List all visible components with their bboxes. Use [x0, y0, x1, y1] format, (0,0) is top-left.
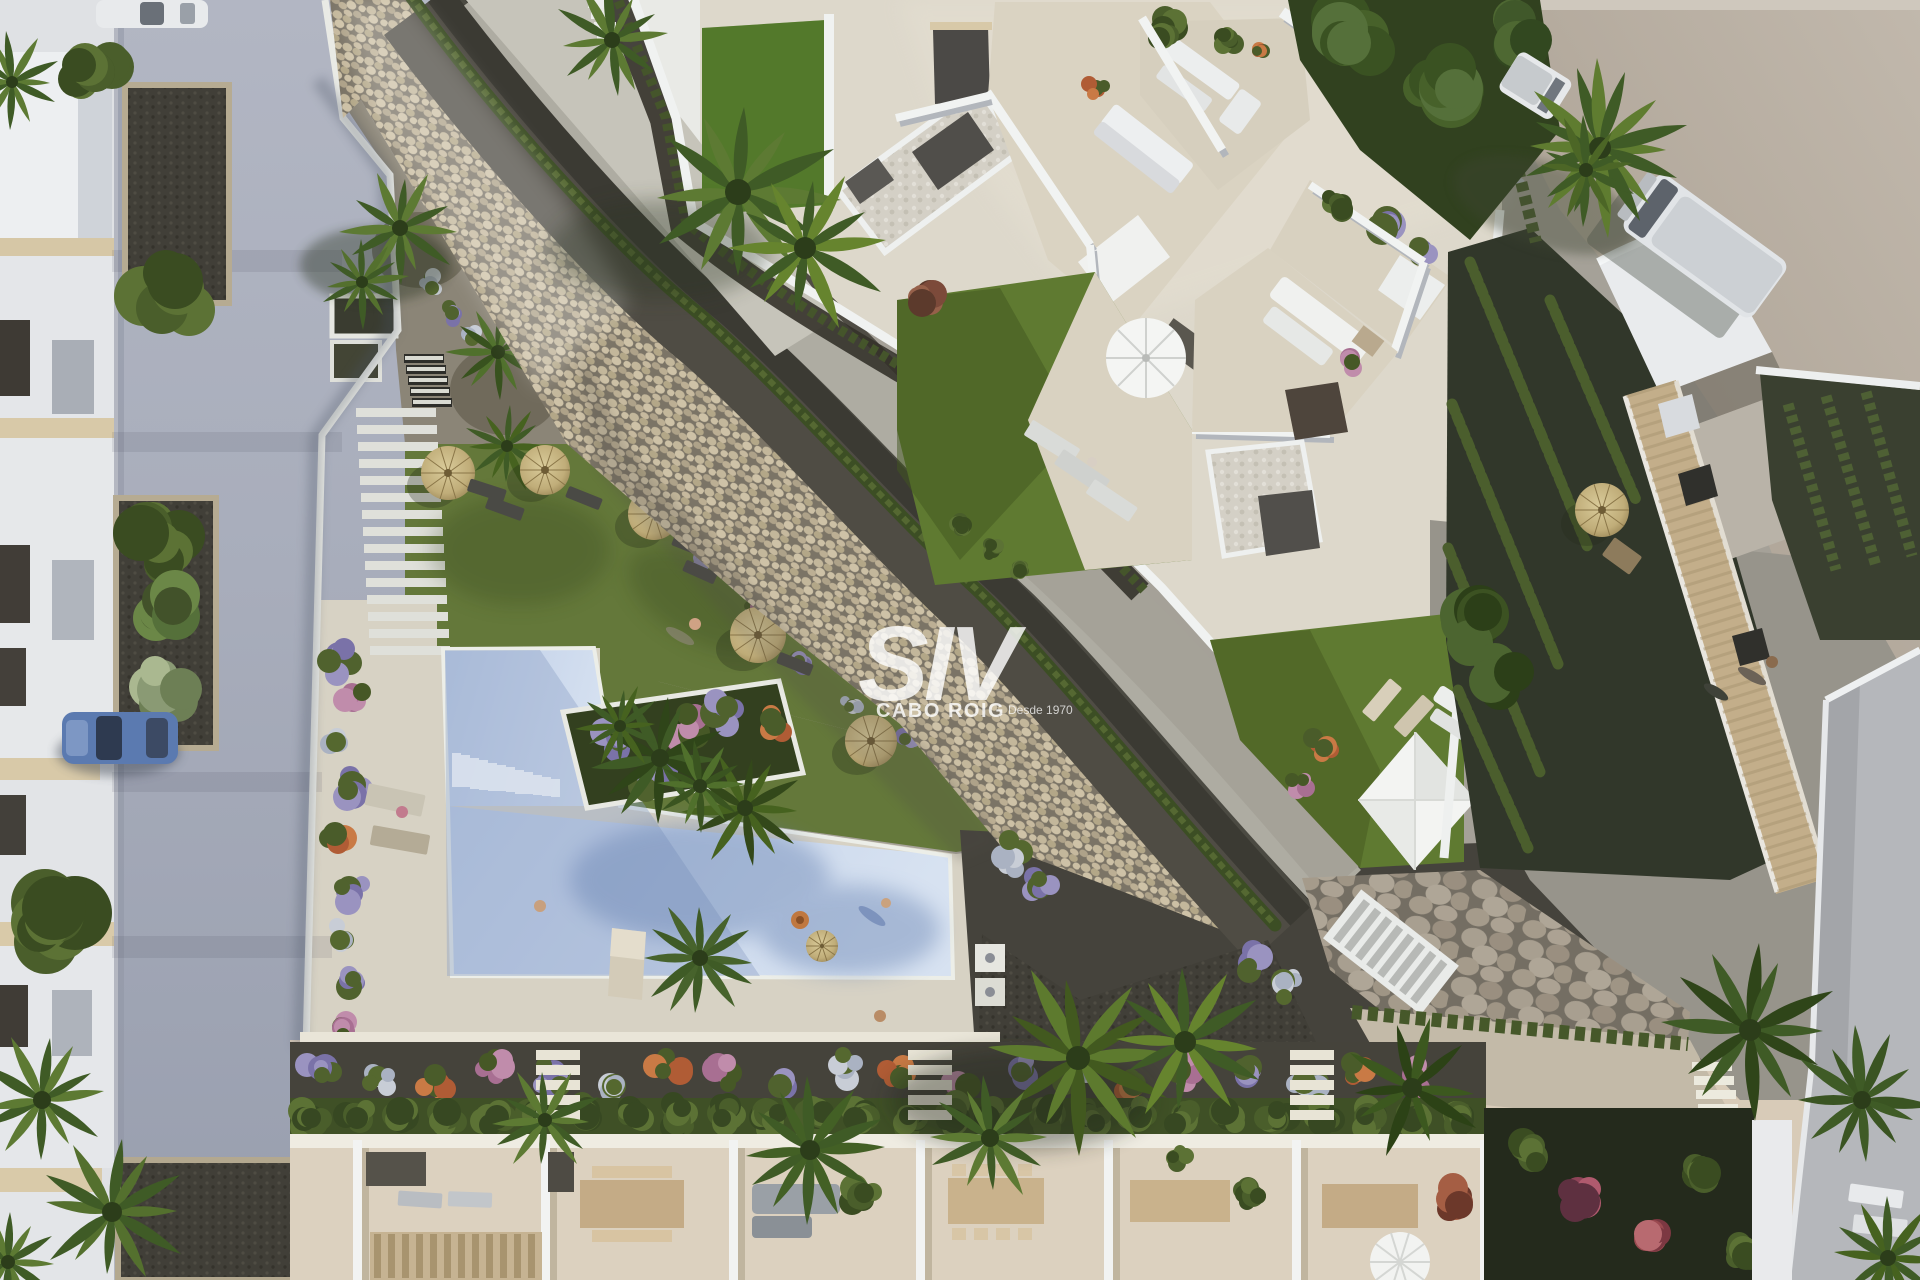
svg-text:Desde 1970: Desde 1970 [1008, 703, 1073, 717]
svg-text:CABO ROIG: CABO ROIG [876, 700, 1005, 722]
